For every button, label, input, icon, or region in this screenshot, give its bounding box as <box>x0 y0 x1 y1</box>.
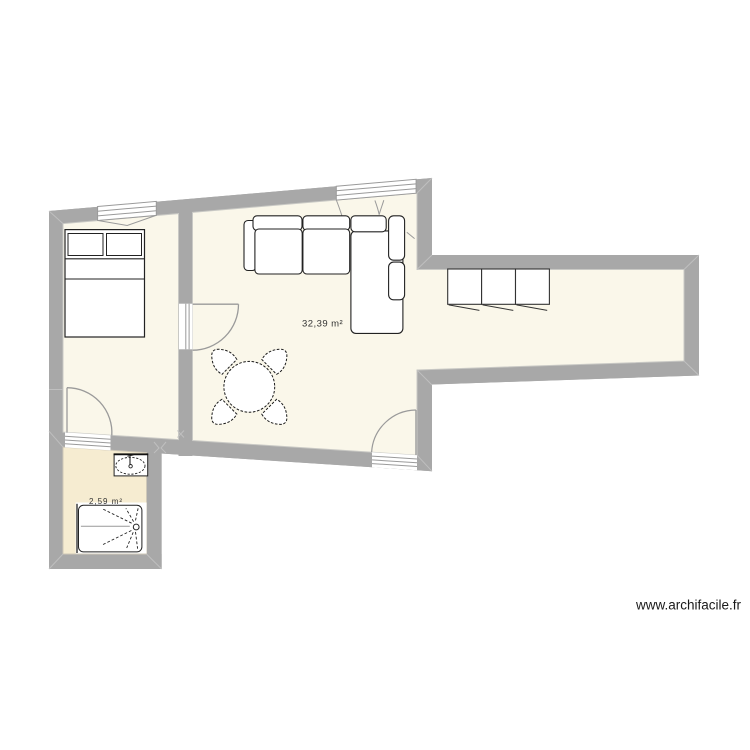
svg-text:2,59 m²: 2,59 m² <box>89 497 123 506</box>
svg-text:www.archifacile.fr: www.archifacile.fr <box>635 597 742 612</box>
svg-text:32,39 m²: 32,39 m² <box>302 319 343 330</box>
